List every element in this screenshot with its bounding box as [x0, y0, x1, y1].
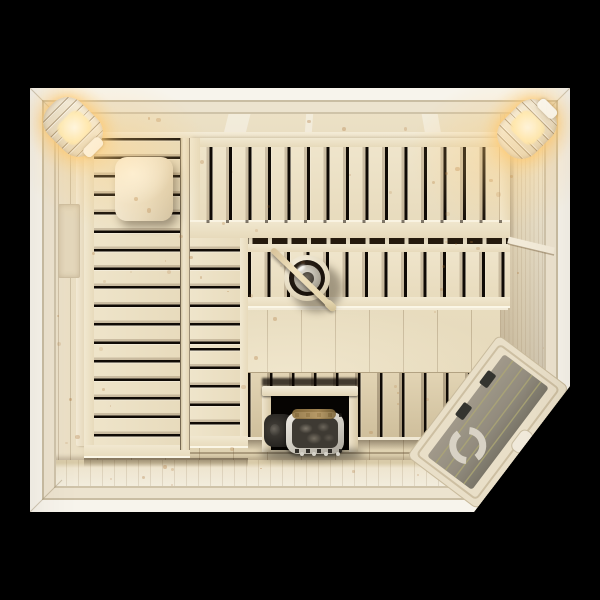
sauna-body	[0, 0, 600, 600]
sauna-render	[0, 0, 600, 600]
vignette	[0, 0, 600, 600]
